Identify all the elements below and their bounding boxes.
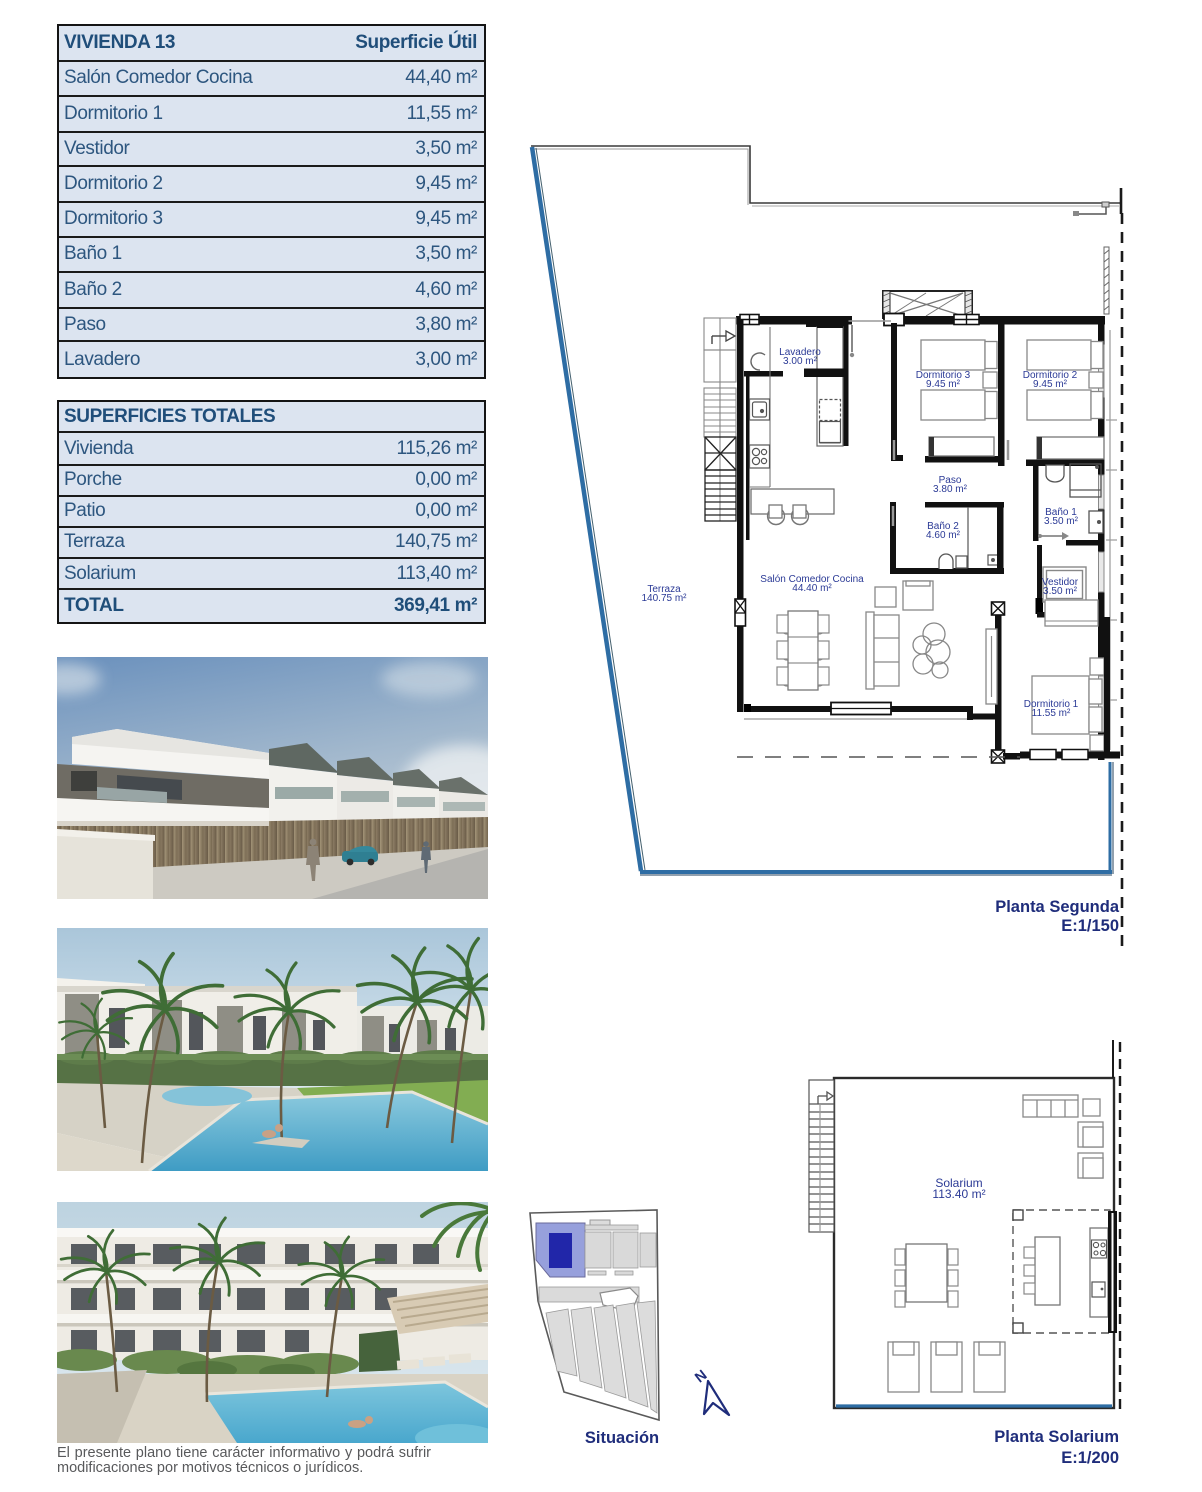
svg-text:3.50 m²: 3.50 m² bbox=[1044, 516, 1079, 527]
svg-text:9.45 m²: 9.45 m² bbox=[926, 379, 961, 390]
svg-text:3.50 m²: 3.50 m² bbox=[1043, 586, 1078, 597]
svg-text:E:1/150: E:1/150 bbox=[1061, 917, 1119, 935]
svg-text:44.40 m²: 44.40 m² bbox=[792, 583, 832, 594]
svg-text:Planta Solarium: Planta Solarium bbox=[994, 1428, 1119, 1446]
svg-text:9.45 m²: 9.45 m² bbox=[1033, 379, 1068, 390]
svg-text:113.40 m²: 113.40 m² bbox=[932, 1187, 985, 1201]
svg-text:3.80 m²: 3.80 m² bbox=[933, 484, 968, 495]
svg-text:E:1/200: E:1/200 bbox=[1061, 1449, 1119, 1467]
svg-text:3.00 m²: 3.00 m² bbox=[783, 356, 818, 367]
svg-text:Situación: Situación bbox=[585, 1429, 659, 1447]
svg-text:4.60 m²: 4.60 m² bbox=[926, 530, 961, 541]
svg-text:11.55 m²: 11.55 m² bbox=[1032, 708, 1071, 719]
svg-text:Planta Segunda: Planta Segunda bbox=[995, 898, 1120, 916]
svg-text:140.75 m²: 140.75 m² bbox=[641, 593, 687, 604]
